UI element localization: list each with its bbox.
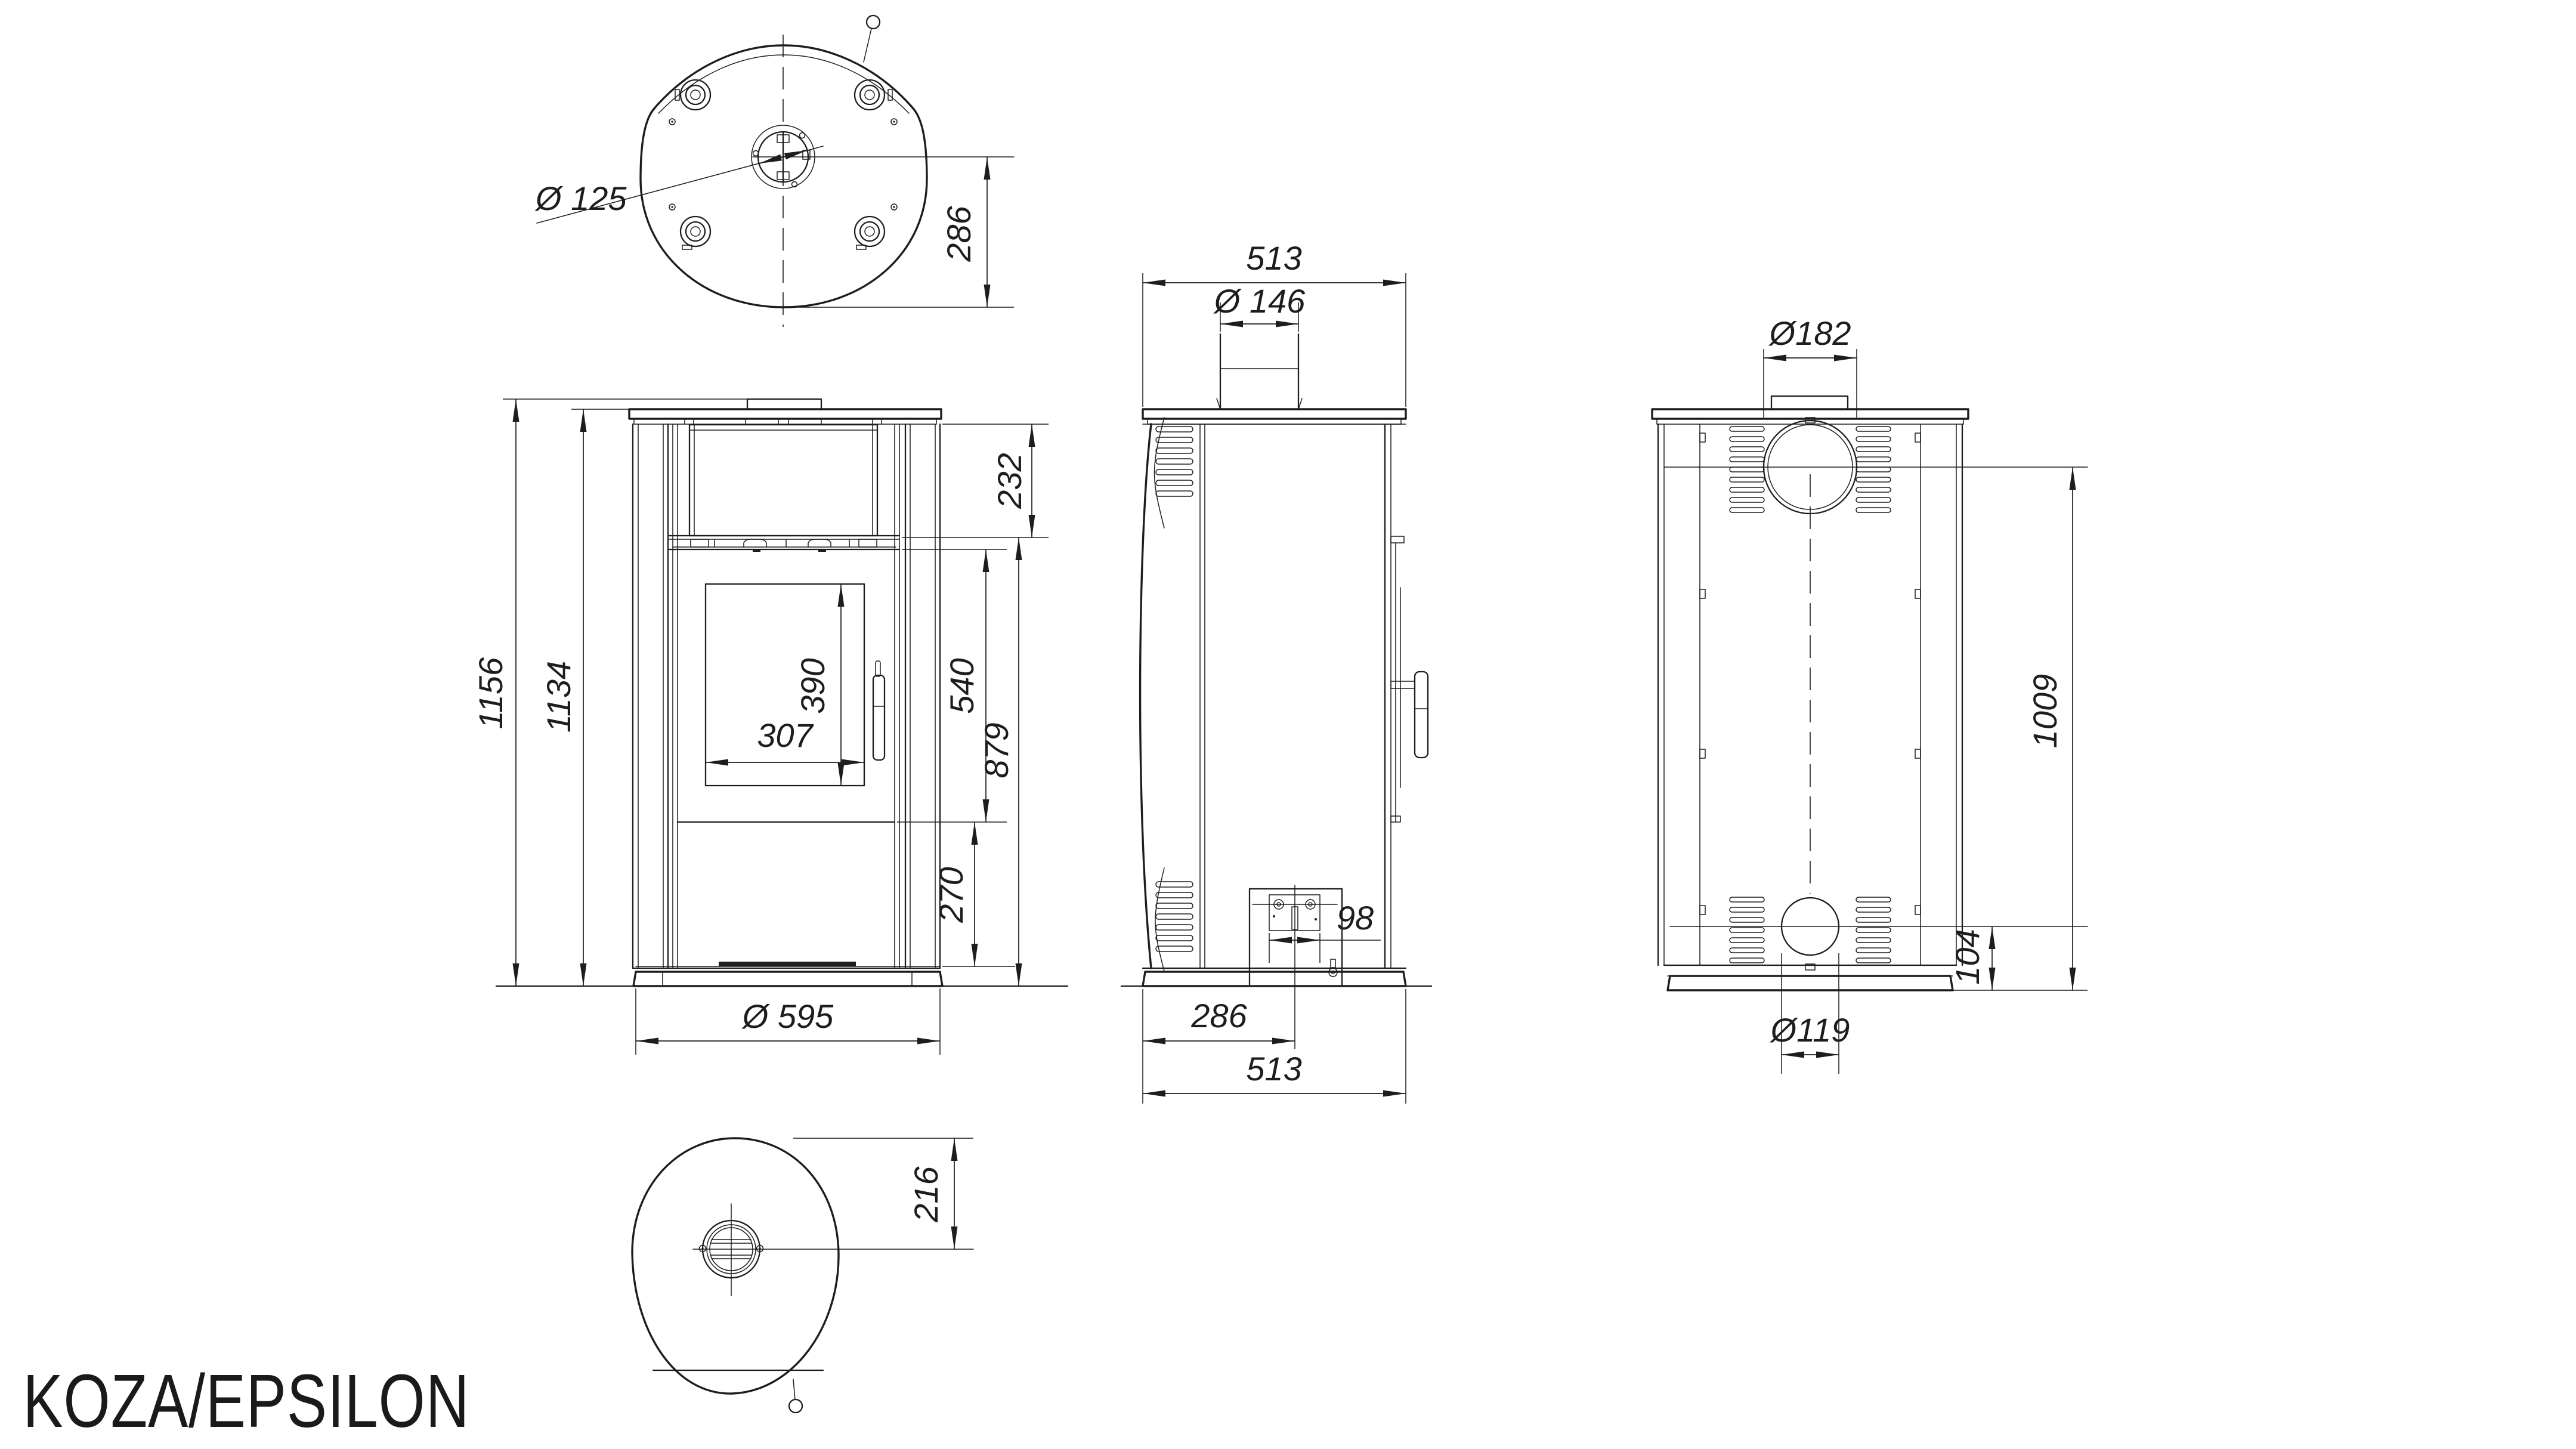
side-vent-slots-top [1156, 427, 1193, 496]
page-title: KOZA/EPSILON [23, 1360, 469, 1443]
bottom-dimensions: 216 [793, 1138, 973, 1249]
technical-drawing: Ø 125 286 [0, 0, 2576, 1449]
front-body-edges [673, 424, 899, 968]
dim-label-ash-drawer-width: 98 [1337, 899, 1374, 937]
top-view: Ø 125 286 [534, 16, 1014, 327]
dim-label-top-chamber-height: 232 [991, 453, 1028, 509]
bottom-view: 216 [632, 1138, 973, 1413]
side-door-edge [1391, 536, 1404, 822]
dim-label-outlet-axis-height: 1009 [2026, 674, 2064, 749]
back-base [1664, 965, 1956, 990]
door-glass [706, 584, 864, 786]
flue-collar-side [1217, 334, 1302, 409]
dim-label-door-chamber-height: 540 [943, 658, 981, 713]
dim-label-glass-height: 390 [794, 658, 831, 713]
drawing-sheet: Ø 125 286 [0, 0, 2576, 1449]
door-handle-front [873, 661, 885, 760]
door-handle-side [1391, 672, 1428, 758]
dim-label-base-depth: 513 [1246, 1050, 1301, 1087]
front-flue-stub [747, 399, 821, 409]
back-flue-stub [1771, 396, 1848, 409]
dim-label-glass-width: 307 [757, 716, 814, 754]
front-view: 1156 1134 232 540 879 270 390 307 Ø 595 [472, 399, 1068, 1055]
bottom-pull-ring [789, 1379, 802, 1413]
door-sill-strip [719, 962, 856, 966]
side-front-curve [1140, 424, 1151, 968]
dim-label-inlet-axis-height: 104 [1949, 929, 1986, 984]
lifting-ring [864, 16, 880, 62]
dim-flue-center-to-back: 286 [799, 157, 1014, 307]
front-top-plate [629, 409, 941, 419]
warming-chamber [689, 425, 877, 536]
side-vent-slots-bottom [1156, 882, 1193, 951]
dim-label-inlet-diameter: Ø119 [1770, 1011, 1850, 1049]
back-walls [1658, 424, 1962, 965]
side-base [1121, 968, 1431, 986]
dim-label-base-diameter: Ø 595 [741, 997, 834, 1035]
front-dimensions: 1156 1134 232 540 879 270 390 307 Ø 595 [472, 399, 1049, 1055]
dim-flue-diameter: Ø 125 [534, 146, 823, 223]
dim-label-front-to-flue-axis: 286 [1190, 997, 1247, 1034]
dim-label-flue-collar-diameter: Ø 146 [1213, 282, 1306, 320]
bottom-shell-outline [632, 1138, 839, 1394]
dim-label-flue-center-to-back: 286 [940, 205, 978, 262]
back-vent-slots-bottom [1730, 897, 1891, 963]
dim-label-grate-center-offset: 216 [907, 1166, 945, 1222]
dim-label-shelf-to-floor: 879 [978, 722, 1015, 778]
dim-label-body-height: 1134 [540, 661, 577, 733]
back-dimensions: Ø182 1009 104 Ø119 [1764, 314, 2073, 1074]
back-vent-slots-top [1730, 427, 1891, 512]
dim-label-flue-diameter: Ø 125 [534, 180, 627, 217]
side-view: 513 Ø 146 98 286 513 [1121, 239, 1431, 1104]
flue-outlet-back [1764, 418, 1857, 514]
side-top-plate [1143, 409, 1406, 419]
front-base [633, 962, 942, 986]
dim-label-outlet-diameter: Ø182 [1768, 314, 1851, 352]
dim-label-lower-panel-height: 270 [932, 867, 970, 923]
air-inlet-back [1782, 898, 1839, 970]
back-view: Ø182 1009 104 Ø119 [1652, 314, 2088, 1074]
shelf-band [669, 536, 899, 552]
dim-label-overall-height: 1156 [472, 657, 509, 729]
front-left-column [633, 424, 668, 968]
dim-label-depth: 513 [1246, 239, 1301, 277]
